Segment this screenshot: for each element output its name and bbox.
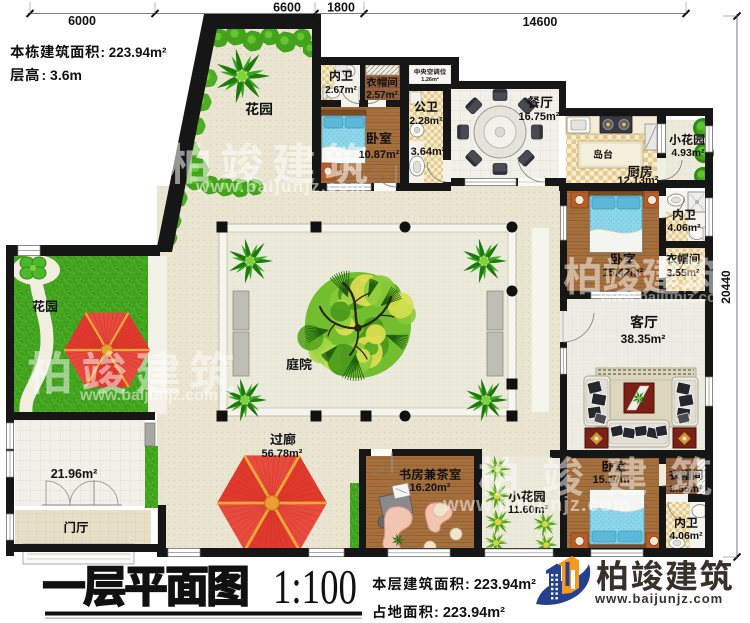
svg-text:14600: 14600: [523, 15, 558, 29]
svg-text:: 223.94m²: : 223.94m²: [101, 45, 168, 60]
svg-text:6000: 6000: [68, 14, 96, 28]
svg-text:1.26m²: 1.26m²: [421, 76, 439, 83]
svg-text:www.baijunjz.com: www.baijunjz.com: [79, 387, 218, 404]
svg-text:www.baijunjz.com: www.baijunjz.com: [599, 289, 729, 306]
svg-text:www.baijunjz.com: www.baijunjz.com: [594, 591, 723, 606]
svg-text:6600: 6600: [273, 1, 301, 15]
svg-text:12.13m²: 12.13m²: [618, 175, 659, 187]
svg-text:2.57m²: 2.57m²: [366, 90, 398, 101]
svg-text:4.93m²: 4.93m²: [671, 147, 705, 159]
svg-text:38.35m²: 38.35m²: [621, 332, 666, 346]
svg-text:: 223.94m²: : 223.94m²: [465, 577, 536, 593]
svg-text:16.75m²: 16.75m²: [519, 111, 560, 123]
svg-text:www.baijunjz.com: www.baijunjz.com: [442, 494, 632, 516]
svg-text:www.baijunjz.com: www.baijunjz.com: [195, 177, 367, 196]
svg-text:4.06m²: 4.06m²: [667, 222, 701, 234]
svg-text:4.06m²: 4.06m²: [669, 530, 703, 542]
svg-text:16.20m²: 16.20m²: [410, 482, 451, 494]
svg-text:: 223.94m²: : 223.94m²: [434, 605, 505, 621]
svg-text:56.78m²: 56.78m²: [262, 448, 303, 460]
svg-text:21.96m²: 21.96m²: [51, 467, 98, 481]
svg-text:1800: 1800: [327, 1, 355, 15]
svg-text:3.64m²: 3.64m²: [411, 146, 446, 158]
svg-text:20440: 20440: [719, 270, 733, 304]
svg-text:2.28m²: 2.28m²: [409, 115, 443, 127]
svg-text:2.67m²: 2.67m²: [325, 85, 357, 96]
svg-text:: 3.6m: : 3.6m: [42, 67, 82, 83]
svg-text:1:100: 1:100: [273, 559, 357, 614]
